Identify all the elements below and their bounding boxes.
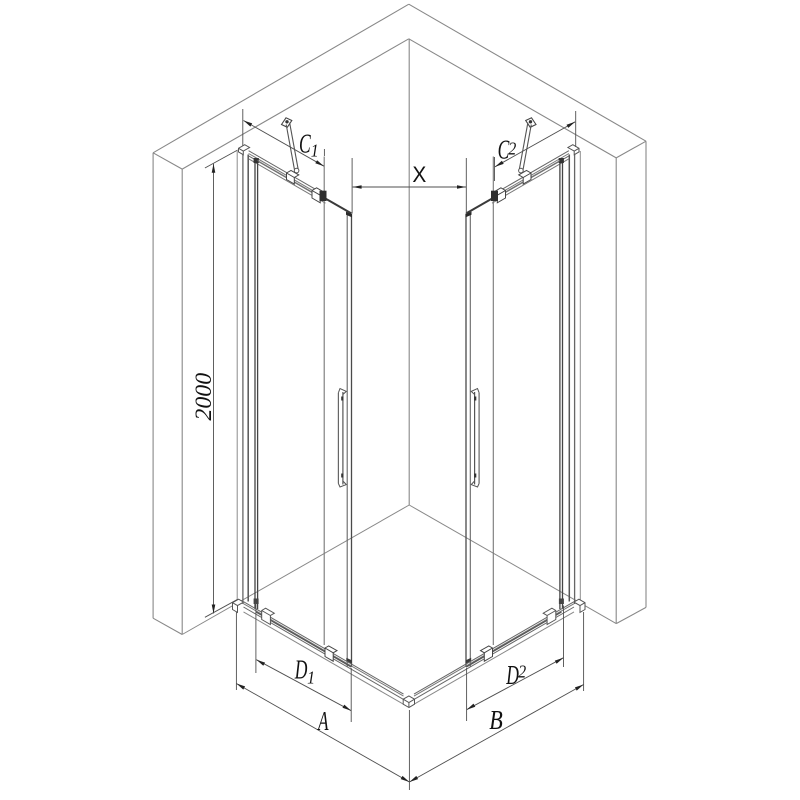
svg-text:2: 2 [508, 139, 516, 159]
svg-text:B: B [489, 706, 503, 736]
svg-text:1: 1 [311, 141, 319, 161]
svg-text:2000: 2000 [191, 373, 216, 421]
svg-text:A: A [316, 706, 328, 736]
svg-text:X: X [412, 163, 426, 188]
svg-text:D: D [505, 660, 519, 690]
svg-text:1: 1 [307, 668, 315, 688]
svg-text:2: 2 [518, 662, 526, 682]
svg-text:D: D [294, 655, 308, 685]
svg-text:C: C [299, 129, 311, 159]
